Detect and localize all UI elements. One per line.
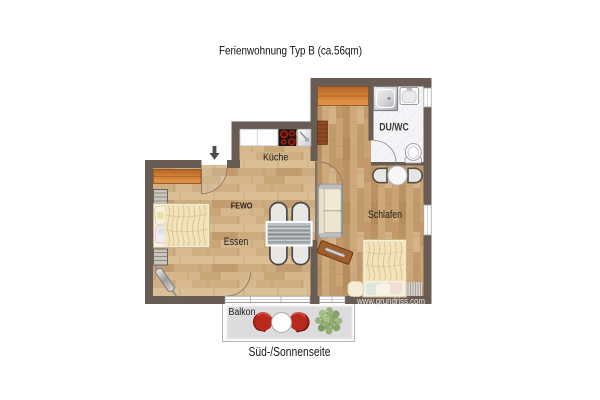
svg-text:Balkon: Balkon <box>229 307 256 318</box>
svg-text:Schlafen: Schlafen <box>368 209 402 221</box>
svg-text:Küche: Küche <box>263 152 289 164</box>
svg-text:FEWO: FEWO <box>231 201 253 211</box>
svg-text:Essen: Essen <box>224 236 249 248</box>
svg-text:Ferienwohnung Typ B (ca.56qm): Ferienwohnung Typ B (ca.56qm) <box>219 44 362 58</box>
svg-text:www.grundriss.com: www.grundriss.com <box>356 296 425 307</box>
svg-text:DU/WC: DU/WC <box>379 121 409 133</box>
svg-text:Süd-/Sonnenseite: Süd-/Sonnenseite <box>249 344 331 359</box>
